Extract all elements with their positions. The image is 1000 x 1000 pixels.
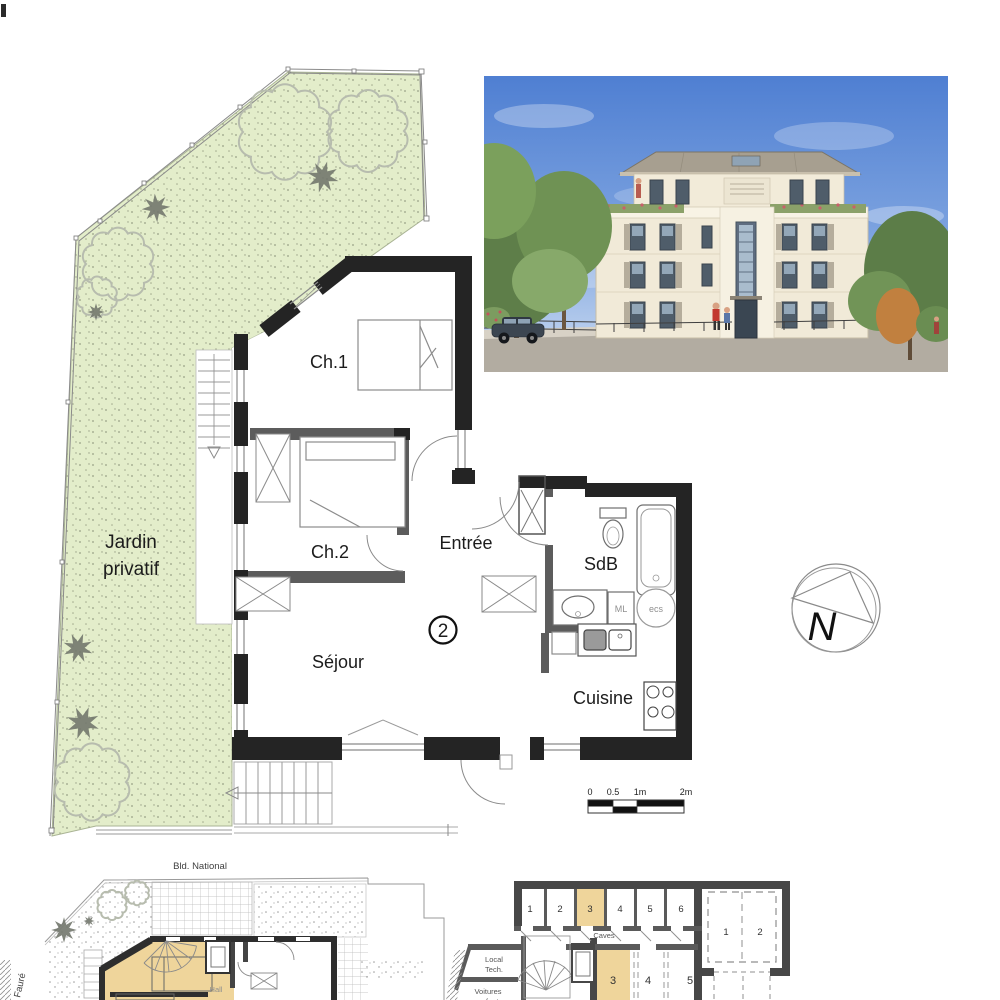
garage-number: 1: [723, 927, 728, 938]
entry-stairs: [226, 762, 458, 836]
room-label-ch2: Ch.2: [311, 542, 349, 562]
garage: [708, 892, 776, 1000]
scale-tick-1m: 1m: [634, 787, 647, 797]
plan-drawing: Jardin privatif: [0, 0, 1000, 1000]
room-label-ch1: Ch.1: [310, 352, 348, 372]
room-label-entree: Entrée: [439, 533, 492, 553]
corner-artifact: [1, 4, 6, 17]
caves-label: Caves: [593, 931, 615, 940]
basement-walls: [514, 881, 790, 1000]
cave-number: 5: [647, 904, 652, 915]
bush-icon: [51, 917, 77, 943]
hall-label: Hall: [210, 985, 223, 994]
north-compass: N: [792, 564, 880, 652]
floor-plan-sheet: Jardin privatif: [0, 0, 1000, 1000]
room-label-cuisine: Cuisine: [573, 688, 633, 708]
scale-tick-05: 0.5: [607, 787, 620, 797]
cave-number: 6: [678, 904, 683, 915]
local-tech-label-line2: Tech.: [485, 965, 503, 974]
water-heater-label: ecs: [649, 604, 664, 614]
toilet-tank: [600, 508, 626, 518]
paved-area: [152, 882, 252, 935]
basement-plan: 1 2 3 4 5 6 Caves 1 2 Local Tech. Voitur…: [446, 881, 790, 1000]
garden-label-line1: Jardin: [105, 532, 157, 553]
garage-number: 2: [757, 927, 762, 938]
building-rendering: [452, 76, 960, 372]
street-label-top: Bld. National: [173, 861, 227, 872]
building: [596, 152, 868, 338]
bush-icon: [83, 915, 94, 926]
bush-icon: [87, 303, 105, 321]
cave-number: 3: [587, 904, 592, 915]
street-label-left: Fauré: [12, 972, 28, 999]
parking-number: 3: [610, 975, 616, 987]
voitures-label-line1: Voitures: [474, 987, 501, 996]
garden-label-line2: privatif: [103, 559, 160, 580]
entrance-door: [735, 300, 757, 338]
elevator: [206, 941, 230, 973]
cave-number: 1: [527, 904, 532, 915]
exterior-stair: [196, 350, 232, 624]
room-label-sdb: SdB: [584, 554, 618, 574]
room-label-sejour: Séjour: [312, 652, 364, 672]
parking-number: 4: [645, 975, 651, 987]
kitchen-sink-icon: [584, 630, 606, 650]
local-tech-label-line1: Local: [485, 955, 503, 964]
basement-shaft: [572, 944, 594, 982]
site-garden-right: [254, 884, 366, 937]
ground-floor-plan: Bld. National Fauré: [0, 861, 444, 1000]
cave-number: 4: [617, 904, 622, 915]
bed-ch2: [300, 437, 405, 527]
scale-bar: 0 0.5 1m 2m: [587, 787, 692, 813]
cave-number: 2: [557, 904, 562, 915]
scale-tick-2m: 2m: [680, 787, 693, 797]
scale-tick-0: 0: [587, 787, 592, 797]
ramp-hatch: [446, 950, 466, 1000]
site-garden-patch: [360, 958, 424, 981]
north-label: N: [808, 605, 837, 649]
bed-ch1: [358, 320, 452, 390]
washing-machine-label: ML: [615, 604, 628, 614]
street-hatch: [0, 960, 11, 1000]
autumn-tree: [876, 288, 920, 344]
parking-number: 5: [687, 975, 693, 987]
unit-number: 2: [438, 621, 449, 642]
unit-number-badge: 2: [430, 617, 457, 644]
terrace-figure: [636, 184, 641, 198]
